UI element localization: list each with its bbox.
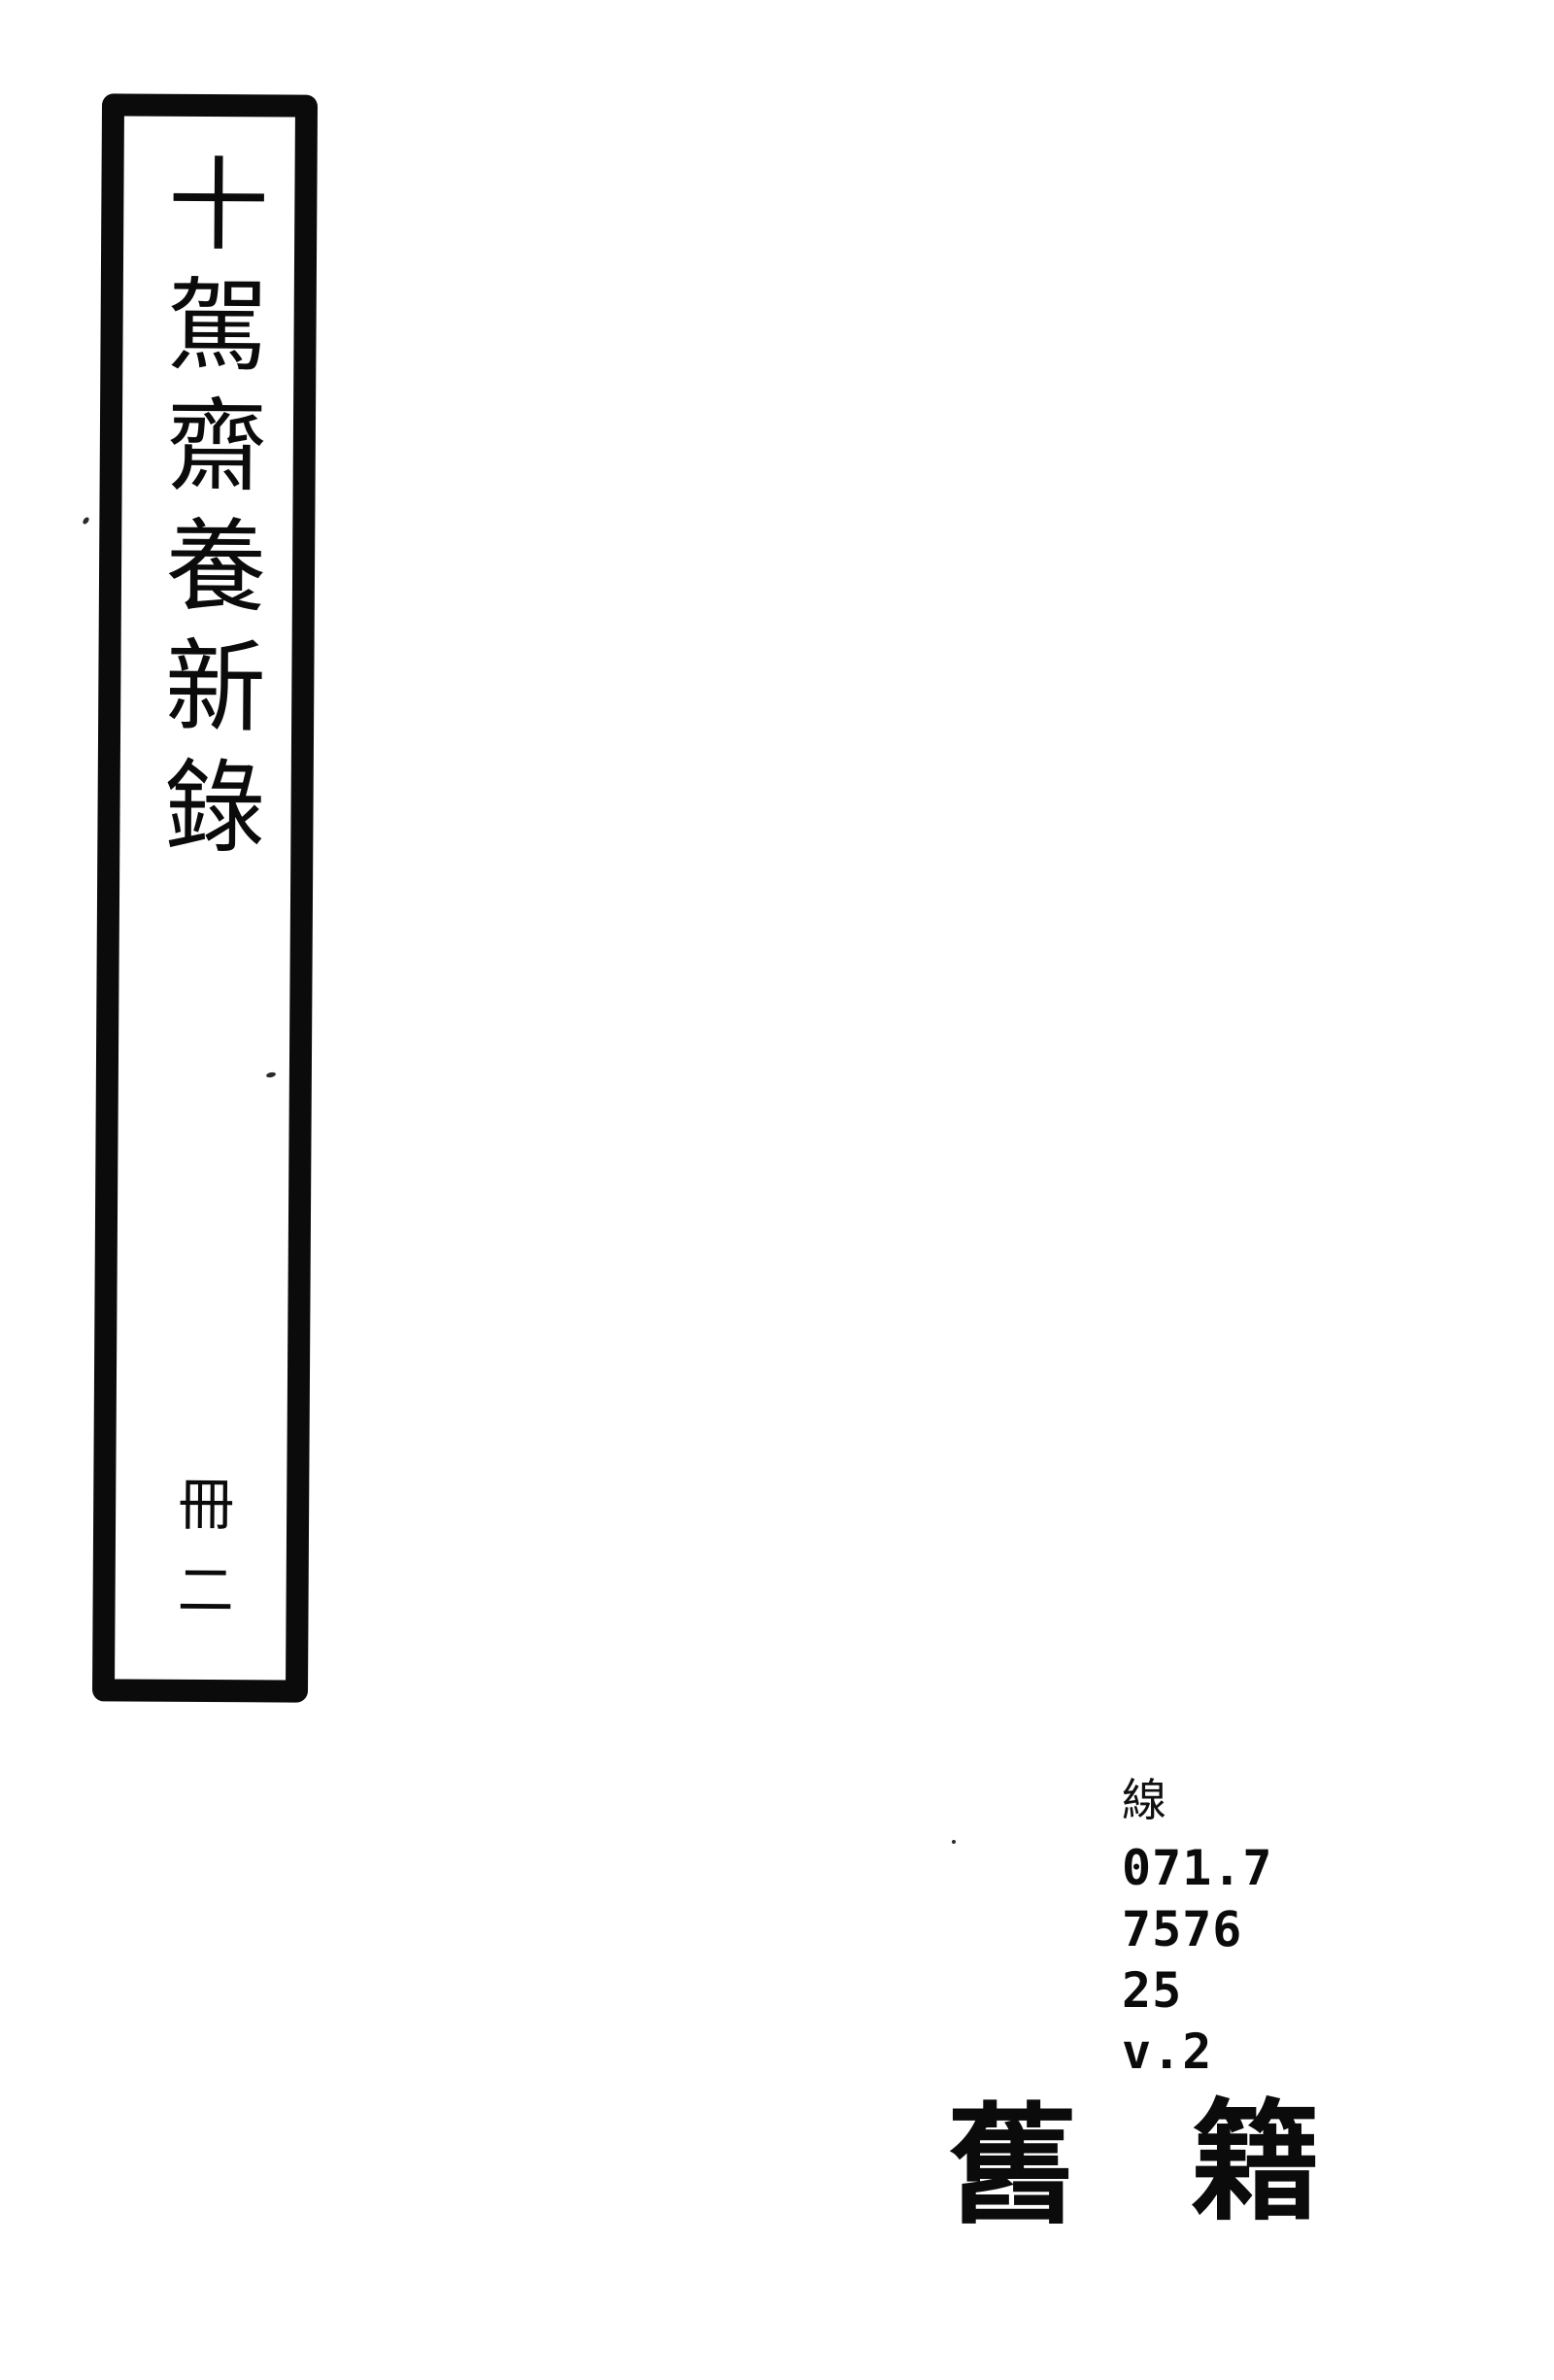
book-title-vertical: 十駕齋養新錄 — [154, 152, 260, 875]
call-number-block: 071.7 7576 25 v.2 — [1122, 1838, 1273, 2083]
call-number-line: 071.7 — [1122, 1838, 1273, 1899]
scan-speck — [82, 516, 90, 525]
scan-speck — [952, 1840, 956, 1844]
category-stamp-char-books: 籍 — [1191, 2096, 1321, 2227]
call-number-line: 25 — [1122, 1960, 1273, 2022]
binding-type-char: 線 — [1122, 1776, 1166, 1825]
category-stamp-char-old: 舊 — [947, 2100, 1077, 2230]
scanned-book-cover-page: 十駕齋養新錄 冊二 線 071.7 7576 25 v.2 舊 籍 — [0, 0, 1554, 2380]
call-number-line: 7576 — [1122, 1899, 1273, 1960]
volume-label-vertical: 冊二 — [172, 1475, 229, 1646]
spine-label-box: 十駕齋養新錄 冊二 — [92, 93, 318, 1702]
call-number-line: v.2 — [1122, 2022, 1273, 2083]
